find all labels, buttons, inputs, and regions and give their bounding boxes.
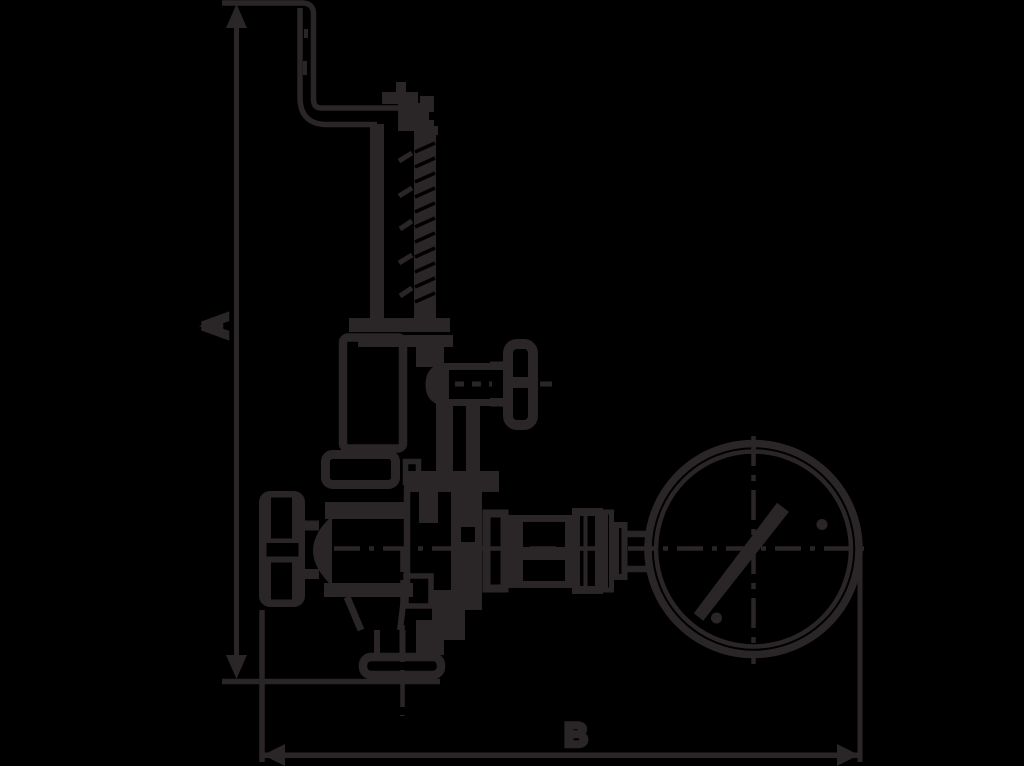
svg-text:B: B bbox=[564, 717, 587, 753]
svg-text:A: A bbox=[197, 314, 235, 339]
